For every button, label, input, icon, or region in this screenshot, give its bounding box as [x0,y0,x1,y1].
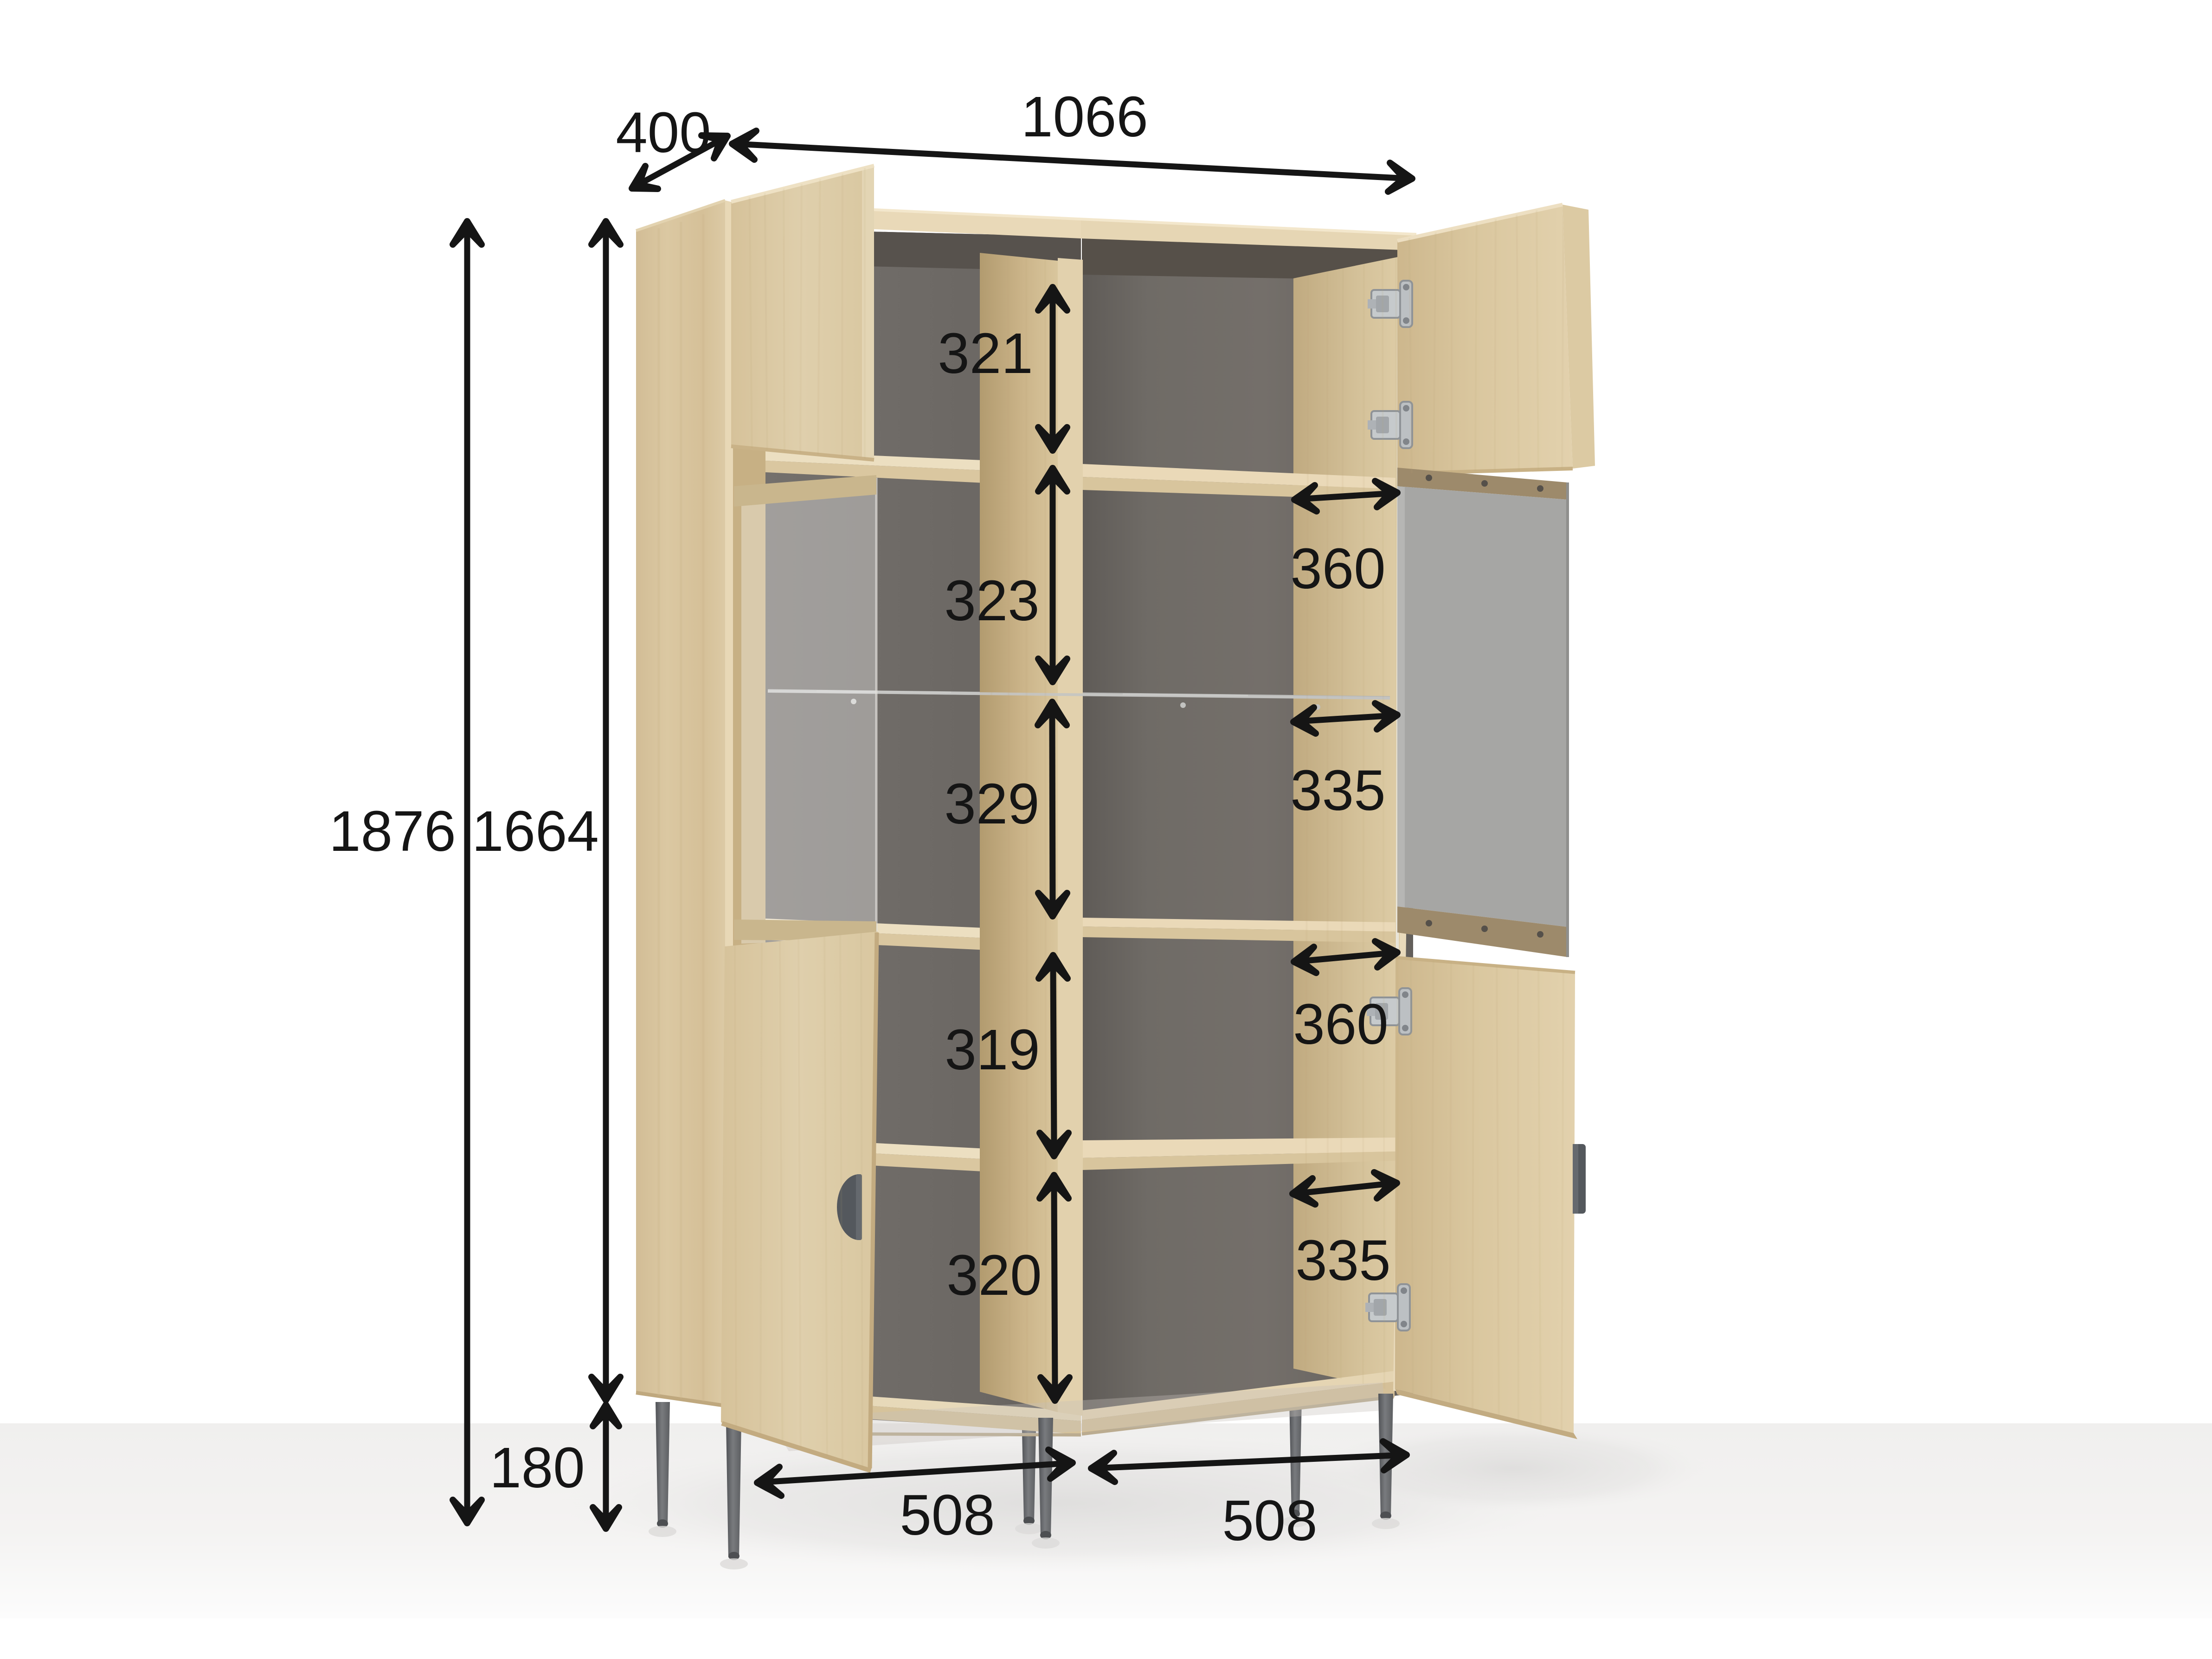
svg-text:508: 508 [1222,1489,1317,1553]
svg-text:360: 360 [1290,537,1385,601]
svg-text:335: 335 [1290,759,1385,823]
svg-text:1876: 1876 [329,800,456,863]
svg-text:321: 321 [938,322,1033,386]
svg-text:360: 360 [1293,993,1388,1056]
svg-text:319: 319 [945,1018,1040,1082]
svg-text:508: 508 [900,1484,995,1547]
svg-text:323: 323 [944,569,1039,633]
svg-text:329: 329 [944,772,1039,836]
svg-text:1664: 1664 [472,800,599,863]
svg-text:400: 400 [616,101,711,165]
svg-text:180: 180 [489,1436,585,1500]
svg-text:320: 320 [946,1244,1042,1307]
svg-text:335: 335 [1295,1229,1390,1292]
svg-text:1066: 1066 [1021,85,1148,149]
